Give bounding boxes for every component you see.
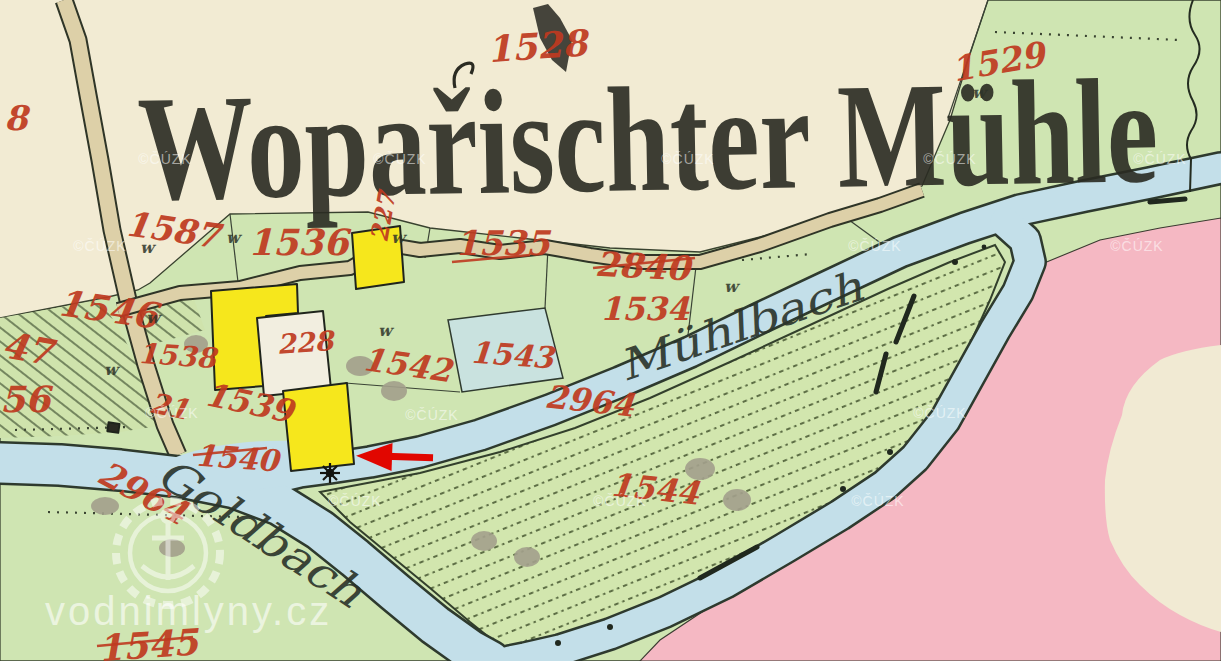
- parcel-label-56: 56: [0, 378, 54, 420]
- parcel-label-1543: 1543: [469, 335, 557, 376]
- cuzk-watermark: ©ČÚZK: [661, 151, 714, 167]
- cuzk-watermark: ©ČÚZK: [848, 238, 901, 254]
- parcel-label-1536: 1536: [248, 221, 352, 263]
- parcel-label-8: 8: [4, 98, 31, 138]
- cuzk-watermark: ©ČÚZK: [851, 493, 904, 509]
- cuzk-watermark: ©ČÚZK: [373, 151, 426, 167]
- waterwheel-icon: [320, 463, 340, 483]
- parcel-label-228: 228: [276, 325, 338, 360]
- cuzk-watermark: ©ČÚZK: [73, 238, 126, 254]
- cuzk-watermark: ©ČÚZK: [328, 493, 381, 509]
- parcel-label-1540: 1540: [194, 438, 283, 479]
- cuzk-watermark: ©ČÚZK: [138, 151, 191, 167]
- site-watermark: vodnimlyny.cz: [45, 589, 332, 633]
- cadastral-map: Wopařischter Mühle Mühlbach Goldbach 8 1…: [0, 0, 1221, 661]
- parcel-label-1534: 1534: [600, 290, 690, 328]
- small-building: [107, 422, 119, 432]
- parcel-label-1538: 1538: [137, 337, 220, 376]
- cuzk-watermark: ©ČÚZK: [913, 405, 966, 421]
- cuzk-watermark: ©ČÚZK: [923, 151, 976, 167]
- cuzk-watermark: ©ČÚZK: [405, 407, 458, 423]
- parcel-label-1528: 1528: [485, 21, 592, 70]
- cuzk-watermark: ©ČÚZK: [1110, 238, 1163, 254]
- cuzk-watermark: ©ČÚZK: [1133, 151, 1186, 167]
- cuzk-watermark: ©ČÚZK: [145, 405, 198, 421]
- map-canvas[interactable]: Wopařischter Mühle Mühlbach Goldbach 8 1…: [0, 0, 1221, 661]
- cuzk-watermark: ©ČÚZK: [593, 493, 646, 509]
